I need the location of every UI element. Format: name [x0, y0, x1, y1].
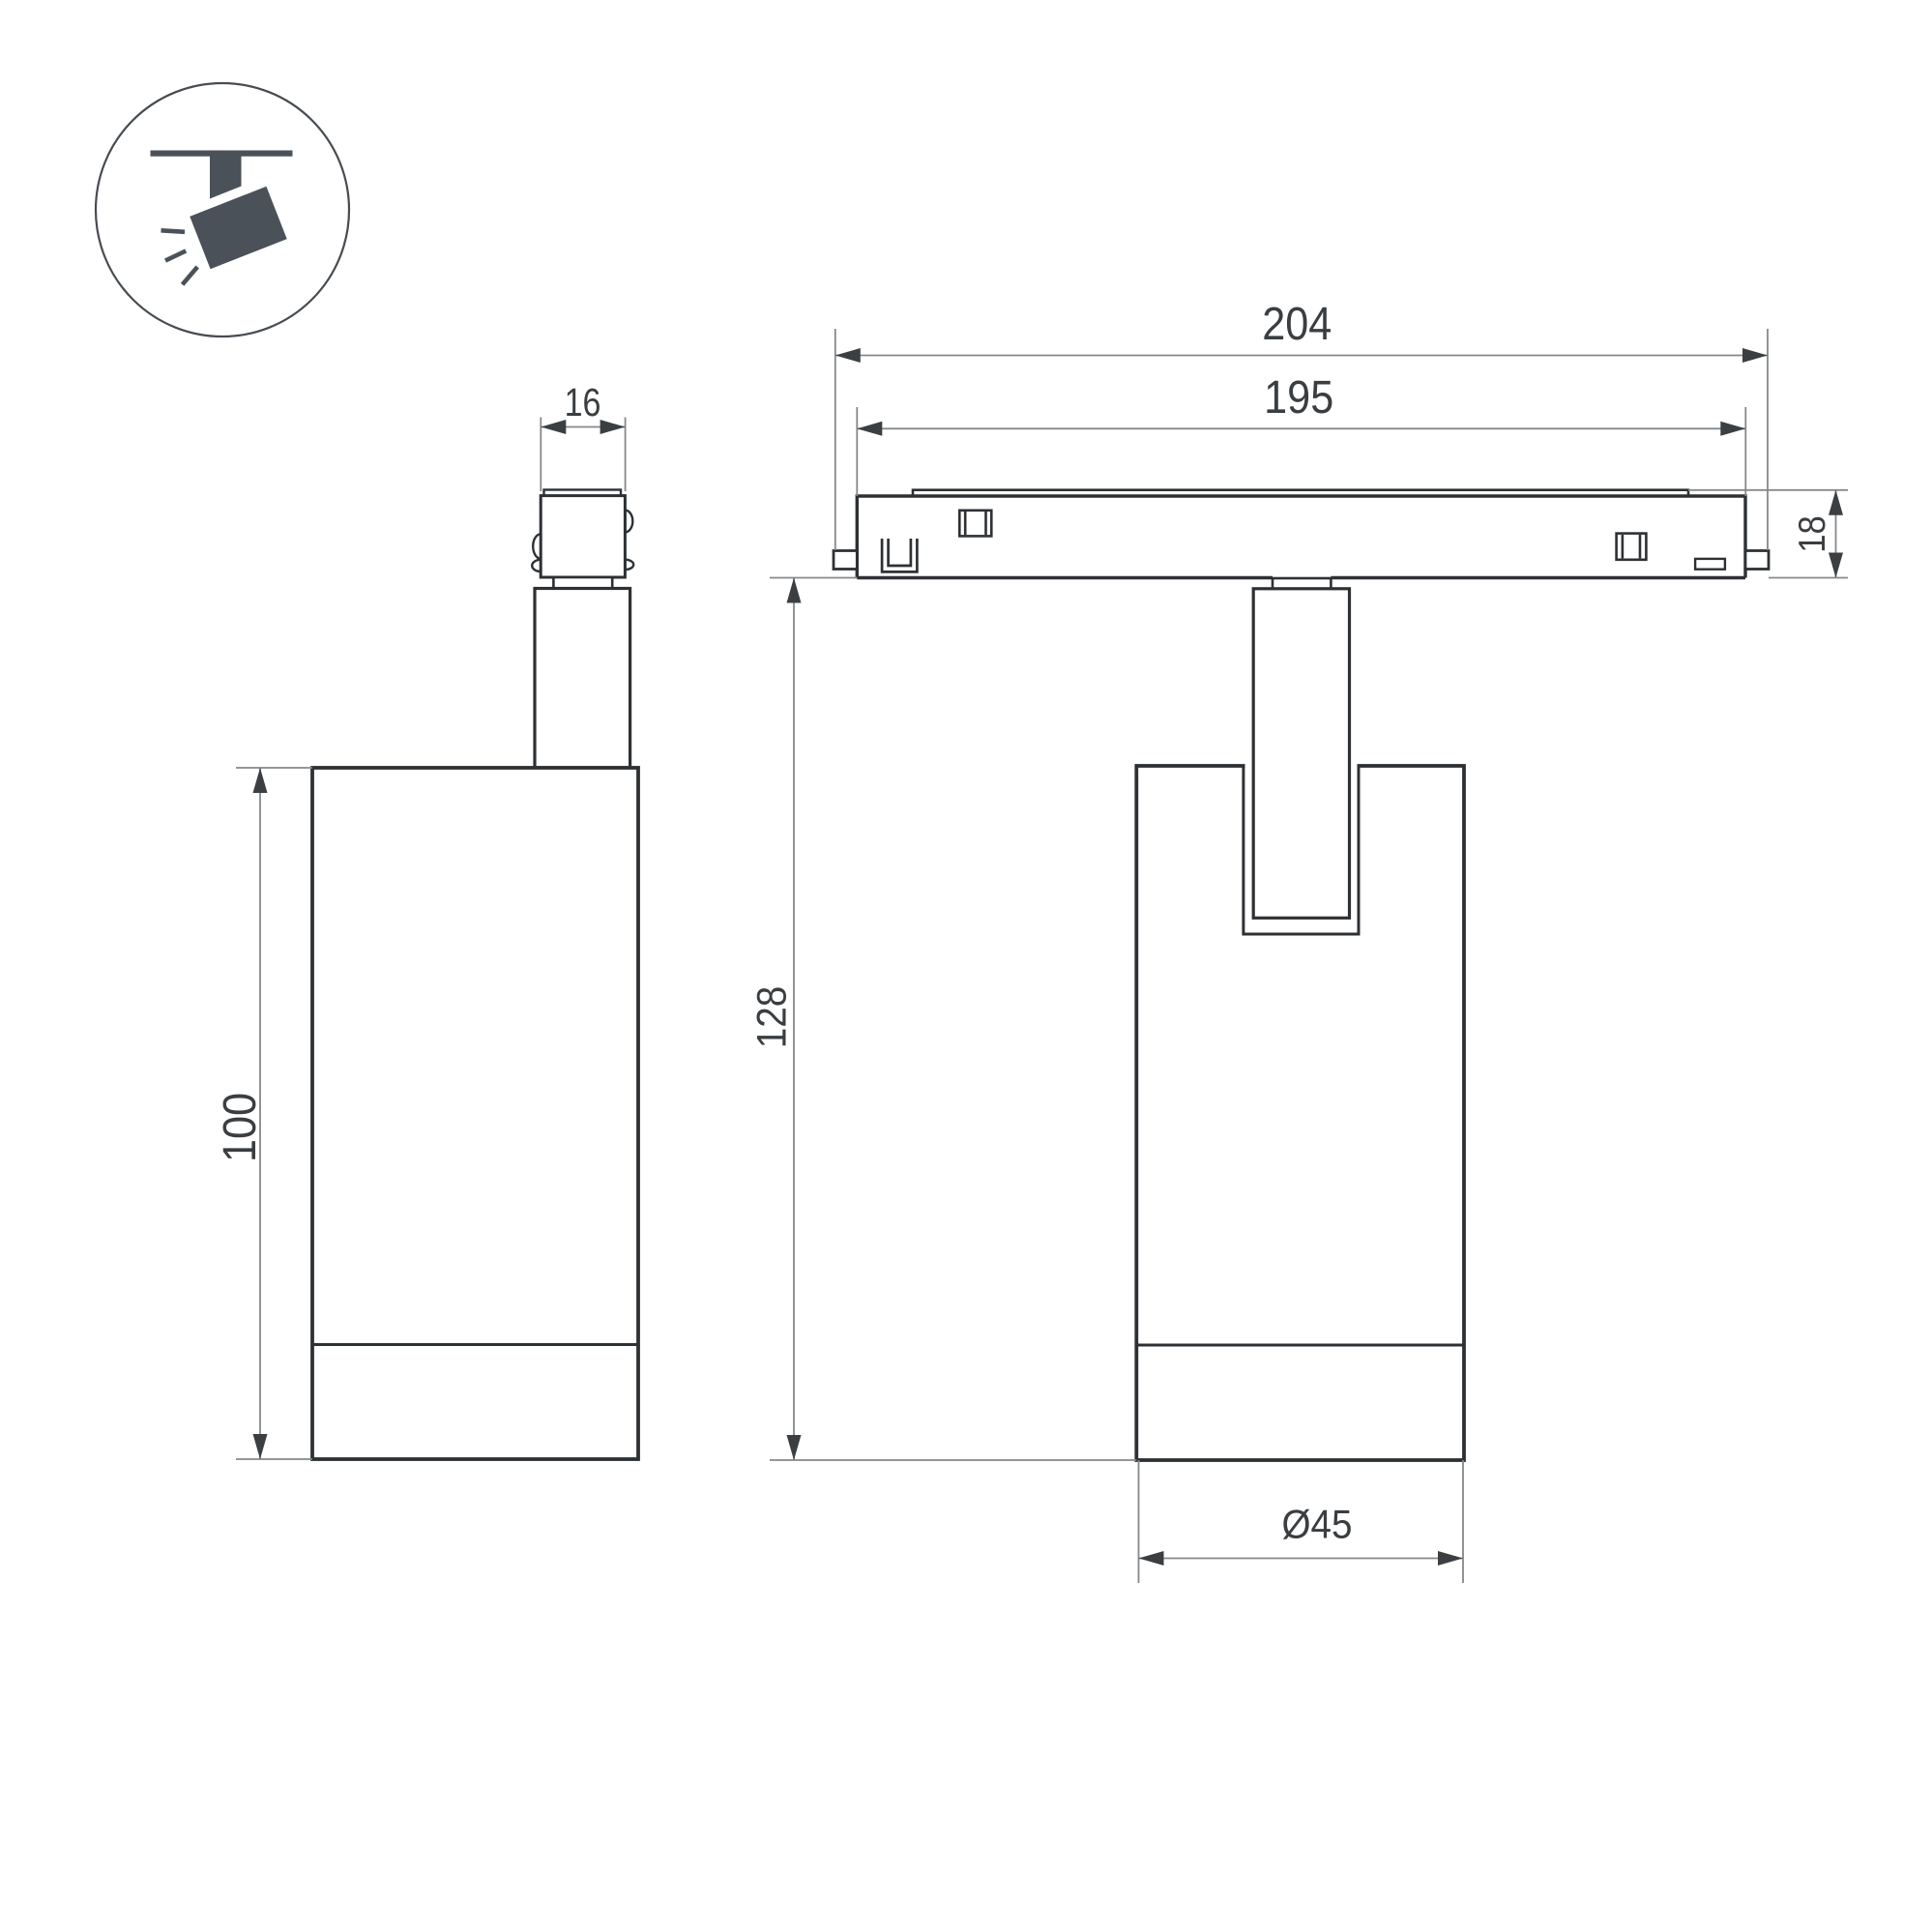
svg-text:204: 204 [1262, 298, 1332, 350]
svg-text:128: 128 [748, 986, 795, 1049]
svg-text:100: 100 [214, 1093, 266, 1162]
svg-text:195: 195 [1264, 371, 1333, 424]
svg-text:18: 18 [1791, 515, 1832, 553]
svg-text:Ø45: Ø45 [1281, 1501, 1352, 1547]
svg-text:16: 16 [565, 380, 601, 424]
